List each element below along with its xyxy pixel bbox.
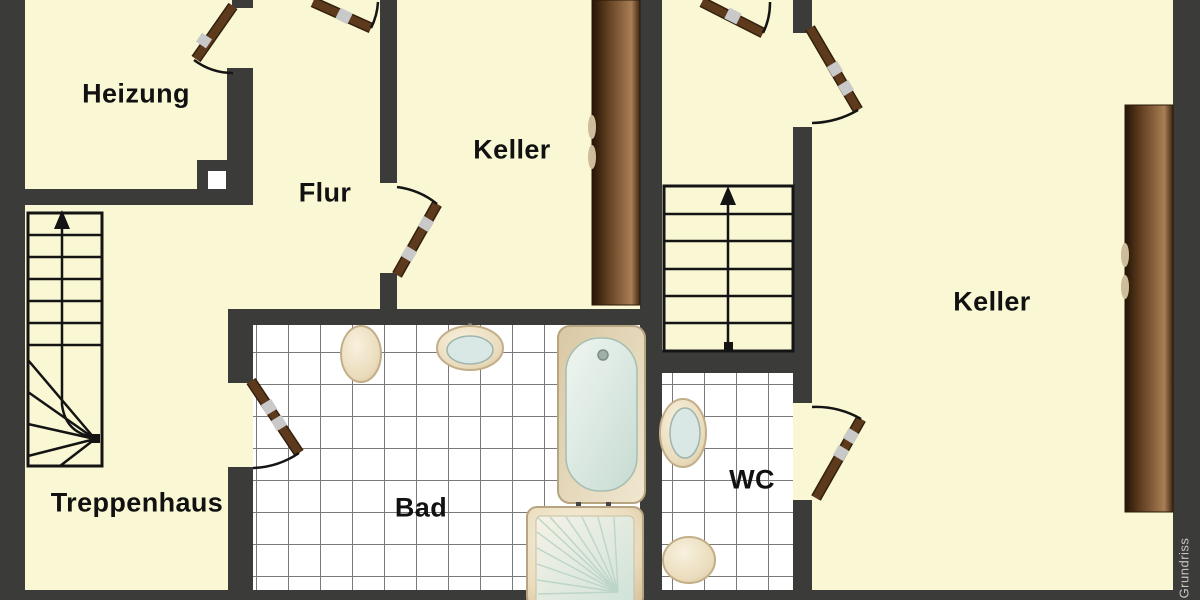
wall-mid-left bbox=[640, 0, 662, 600]
floor-plan: Heizung Flur Keller Keller Treppenhaus B… bbox=[0, 0, 1200, 600]
stairs-treppenhaus-start-marker bbox=[91, 434, 100, 443]
room-label-keller-left: Keller bbox=[473, 135, 550, 166]
wall-stairs-bottom bbox=[640, 350, 812, 373]
cupboard-handle bbox=[588, 115, 596, 139]
wall-mid-right-bottom bbox=[793, 500, 812, 590]
wc-sink bbox=[660, 399, 706, 467]
cupboard-handle bbox=[588, 145, 596, 169]
wall-left-outer bbox=[0, 0, 25, 600]
wall-bad-left-upper bbox=[228, 309, 253, 383]
wall-right-outer bbox=[1173, 0, 1200, 600]
wall-bad-left-lower bbox=[228, 467, 253, 590]
wc-toilet bbox=[663, 537, 715, 583]
bathtub bbox=[558, 326, 645, 503]
cupboard-handle bbox=[1121, 275, 1129, 299]
stairs-main-start-marker bbox=[724, 342, 733, 351]
drain-icon bbox=[598, 350, 608, 360]
room-label-heizung: Heizung bbox=[82, 79, 190, 110]
wall-top-stub-heizung bbox=[232, 0, 253, 8]
wall-flur-keller-stub bbox=[380, 273, 397, 310]
cupboard-keller-right bbox=[1125, 105, 1173, 512]
toilet bbox=[341, 326, 381, 382]
shower bbox=[527, 507, 643, 600]
room-label-flur: Flur bbox=[299, 178, 352, 209]
cupboard-keller-left bbox=[592, 0, 640, 305]
room-label-bad: Bad bbox=[395, 493, 447, 524]
watermark-grundriss: Grundriss bbox=[1177, 538, 1192, 599]
room-label-treppenhaus: Treppenhaus bbox=[51, 488, 223, 519]
chimney-flue bbox=[208, 171, 226, 189]
wall-flur-keller bbox=[380, 0, 397, 183]
cupboard-handle bbox=[1121, 243, 1129, 267]
wall-mid-right-top bbox=[793, 0, 812, 33]
wall-bad-top bbox=[228, 309, 662, 325]
room-label-wc: WC bbox=[729, 465, 775, 496]
wall-heizung-right bbox=[227, 68, 253, 189]
room-label-keller-right: Keller bbox=[953, 287, 1030, 318]
